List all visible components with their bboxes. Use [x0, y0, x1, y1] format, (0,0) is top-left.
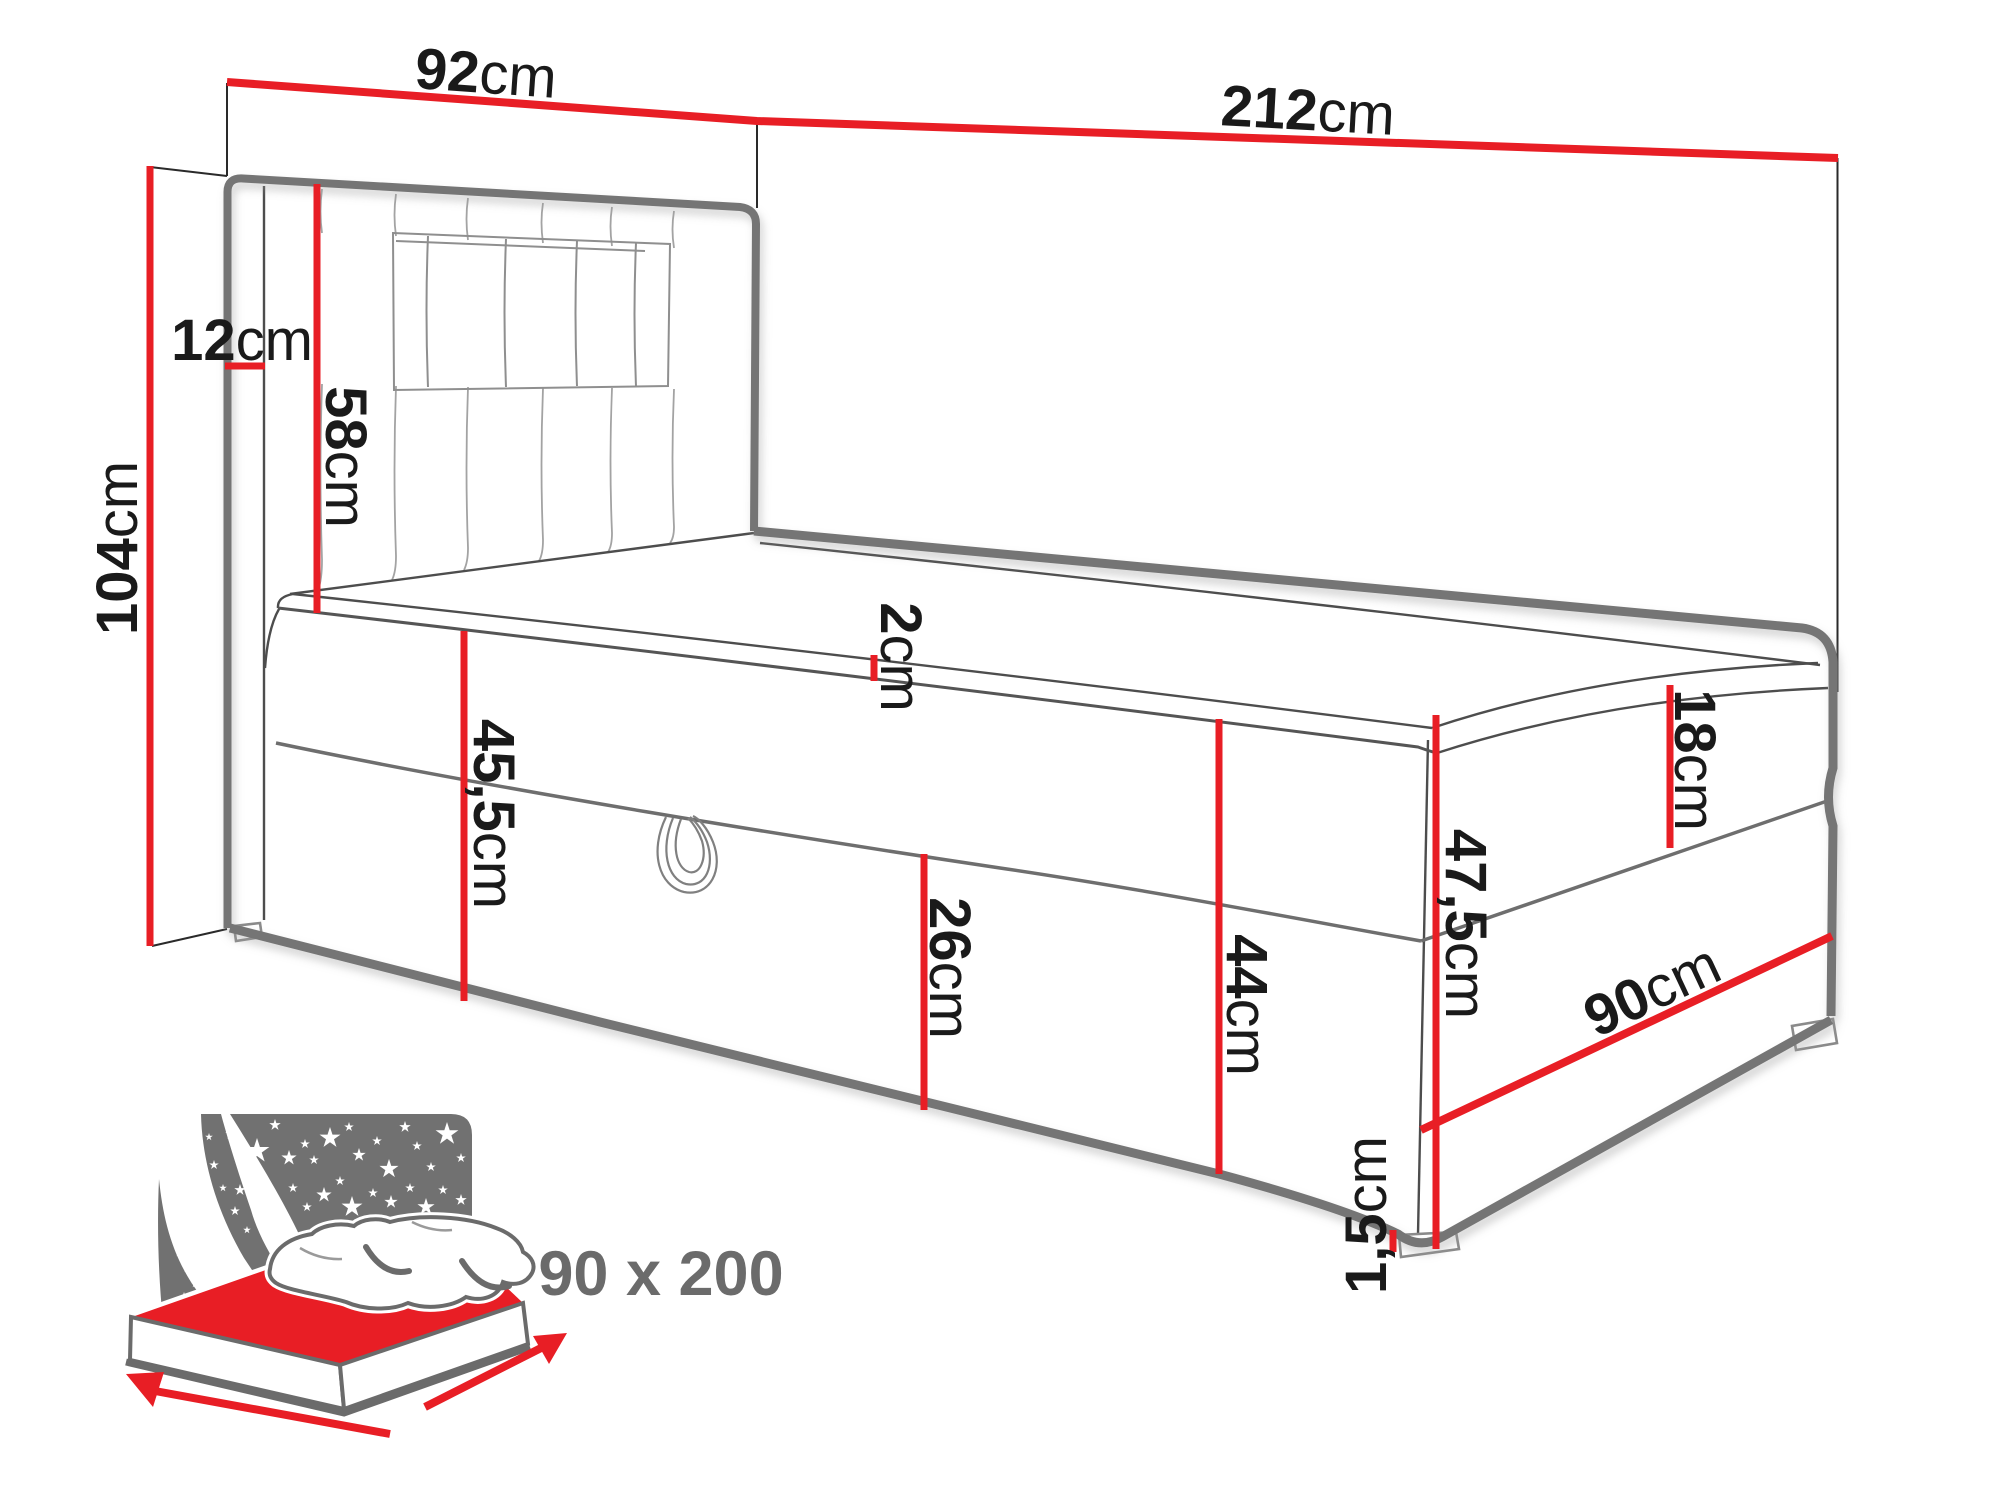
svg-text:47,5cm: 47,5cm — [1434, 829, 1499, 1019]
svg-text:90 x 200: 90 x 200 — [538, 1239, 783, 1309]
svg-text:45,5cm: 45,5cm — [462, 719, 527, 909]
svg-text:26cm: 26cm — [918, 897, 983, 1039]
svg-text:44cm: 44cm — [1215, 934, 1280, 1076]
svg-text:212cm: 212cm — [1219, 73, 1396, 148]
svg-text:58cm: 58cm — [314, 386, 379, 528]
svg-text:92cm: 92cm — [413, 36, 559, 111]
svg-text:18cm: 18cm — [1663, 689, 1728, 831]
svg-text:104cm: 104cm — [85, 461, 150, 635]
svg-text:2cm: 2cm — [869, 602, 934, 712]
svg-text:1,5cm: 1,5cm — [1334, 1136, 1399, 1294]
svg-text:12cm: 12cm — [171, 308, 313, 373]
